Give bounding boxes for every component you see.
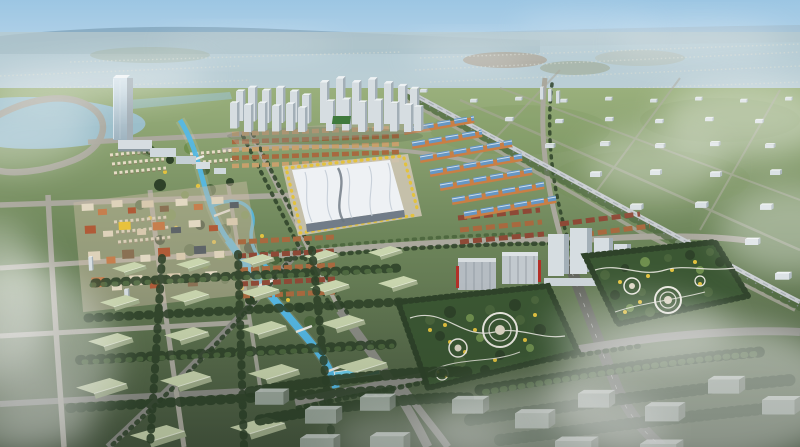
- city-aerial-rendering: [0, 0, 800, 447]
- rendering-canvas: [0, 0, 800, 447]
- vignette: [0, 280, 800, 447]
